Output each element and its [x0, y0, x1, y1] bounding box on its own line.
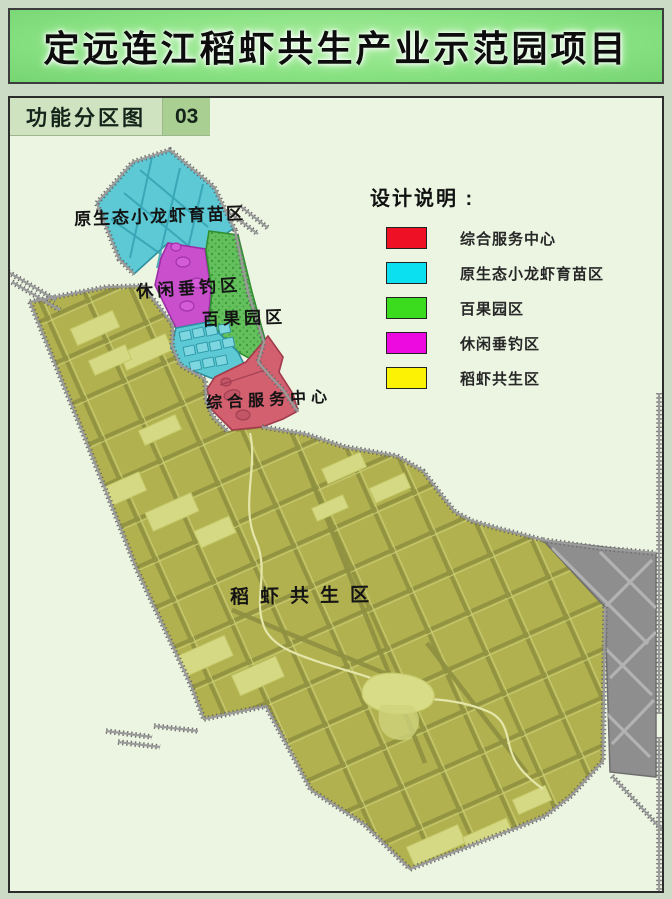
map-tag: 功能分区图 03 — [10, 98, 210, 136]
legend-row: 稻虾共生区 — [370, 367, 630, 389]
legend-label-crayfish: 原生态小龙虾育苗区 — [460, 263, 604, 284]
legend: 设计说明 : 综合服务中心 原生态小龙虾育苗区 百果园区 休闲垂钓区 稻虾共生区 — [370, 182, 630, 402]
legend-swatch-rice — [386, 367, 427, 389]
page-title: 定远连江稻虾共生产业示范园项目 — [43, 20, 628, 72]
legend-swatch-service — [386, 227, 427, 249]
map-label-rice-shrimp: 稻虾共生区 — [230, 580, 380, 610]
legend-title: 设计说明 : — [370, 182, 630, 211]
legend-label-rice: 稻虾共生区 — [460, 368, 540, 389]
legend-swatch-fishing — [386, 332, 427, 354]
legend-row: 百果园区 — [370, 297, 630, 319]
legend-swatch-crayfish — [386, 262, 427, 284]
legend-label-fishing: 休闲垂钓区 — [460, 333, 540, 354]
legend-swatch-orchard — [386, 297, 427, 319]
legend-row: 休闲垂钓区 — [370, 332, 630, 354]
legend-row: 原生态小龙虾育苗区 — [370, 262, 630, 284]
map-tag-label: 功能分区图 — [10, 98, 163, 136]
map-tag-number: 03 — [163, 98, 210, 136]
legend-label-service: 综合服务中心 — [460, 228, 556, 249]
map-panel: 功能分区图 03 — [8, 96, 664, 893]
legend-label-orchard: 百果园区 — [460, 298, 524, 319]
map-label-orchard: 百果园区 — [202, 303, 287, 331]
page: 定远连江稻虾共生产业示范园项目 功能分区图 03 — [0, 0, 672, 899]
title-banner: 定远连江稻虾共生产业示范园项目 — [8, 8, 664, 84]
legend-row: 综合服务中心 — [370, 227, 630, 249]
